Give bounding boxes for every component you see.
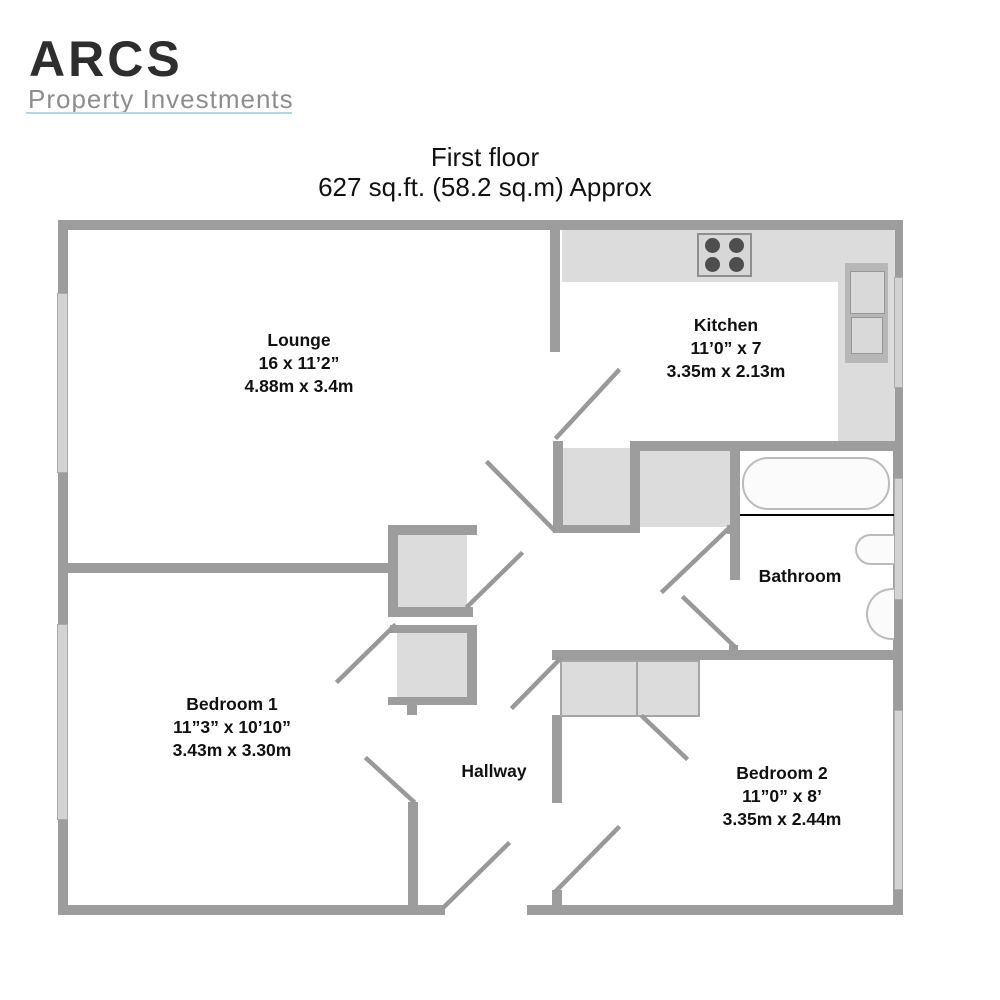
room-dims-metric: 3.35m x 2.44m <box>723 808 842 831</box>
room-name: Kitchen <box>667 314 786 337</box>
floorplan-page: ARCS Property Investments First floor 62… <box>0 0 1000 1000</box>
room-dims-metric: 3.35m x 2.13m <box>667 360 786 383</box>
hall-corner-door-swing <box>513 660 559 707</box>
lounge-label: Lounge 16 x 11’2” 4.88m x 3.4m <box>245 329 354 398</box>
bathroom-door-swing <box>684 598 735 647</box>
door-swings <box>0 0 1000 1000</box>
kitchen-cupboard-door-swing <box>663 528 729 591</box>
bedroom2-door-swing <box>556 828 618 891</box>
kitchen-label: Kitchen 11’0” x 7 3.35m x 2.13m <box>667 314 786 383</box>
room-dims-imperial: 11”0” x 8’ <box>723 785 842 808</box>
lounge-door-swing <box>488 463 553 529</box>
room-name: Hallway <box>461 760 526 783</box>
hall-cupboard-lower-door-swing <box>338 626 394 681</box>
bathroom-label: Bathroom <box>759 565 842 588</box>
kitchen-door-swing <box>557 371 618 437</box>
hall-cupboard-upper-door-swing <box>468 554 521 606</box>
bedroom2-label: Bedroom 2 11”0” x 8’ 3.35m x 2.44m <box>723 762 842 831</box>
room-dims-metric: 4.88m x 3.4m <box>245 375 354 398</box>
bedroom2-wardrobe-door-swing <box>643 717 686 758</box>
bedroom1-door-swing <box>367 759 413 801</box>
room-dims-imperial: 16 x 11’2” <box>245 352 354 375</box>
hallway-label: Hallway <box>461 760 526 783</box>
room-dims-metric: 3.43m x 3.30m <box>173 739 292 762</box>
room-name: Bedroom 2 <box>723 762 842 785</box>
bedroom1-label: Bedroom 1 11”3” x 10’10” 3.43m x 3.30m <box>173 693 292 762</box>
front-door-swing <box>445 844 508 906</box>
room-name: Bathroom <box>759 565 842 588</box>
room-dims-imperial: 11”3” x 10’10” <box>173 716 292 739</box>
room-name: Bedroom 1 <box>173 693 292 716</box>
room-name: Lounge <box>245 329 354 352</box>
room-dims-imperial: 11’0” x 7 <box>667 337 786 360</box>
